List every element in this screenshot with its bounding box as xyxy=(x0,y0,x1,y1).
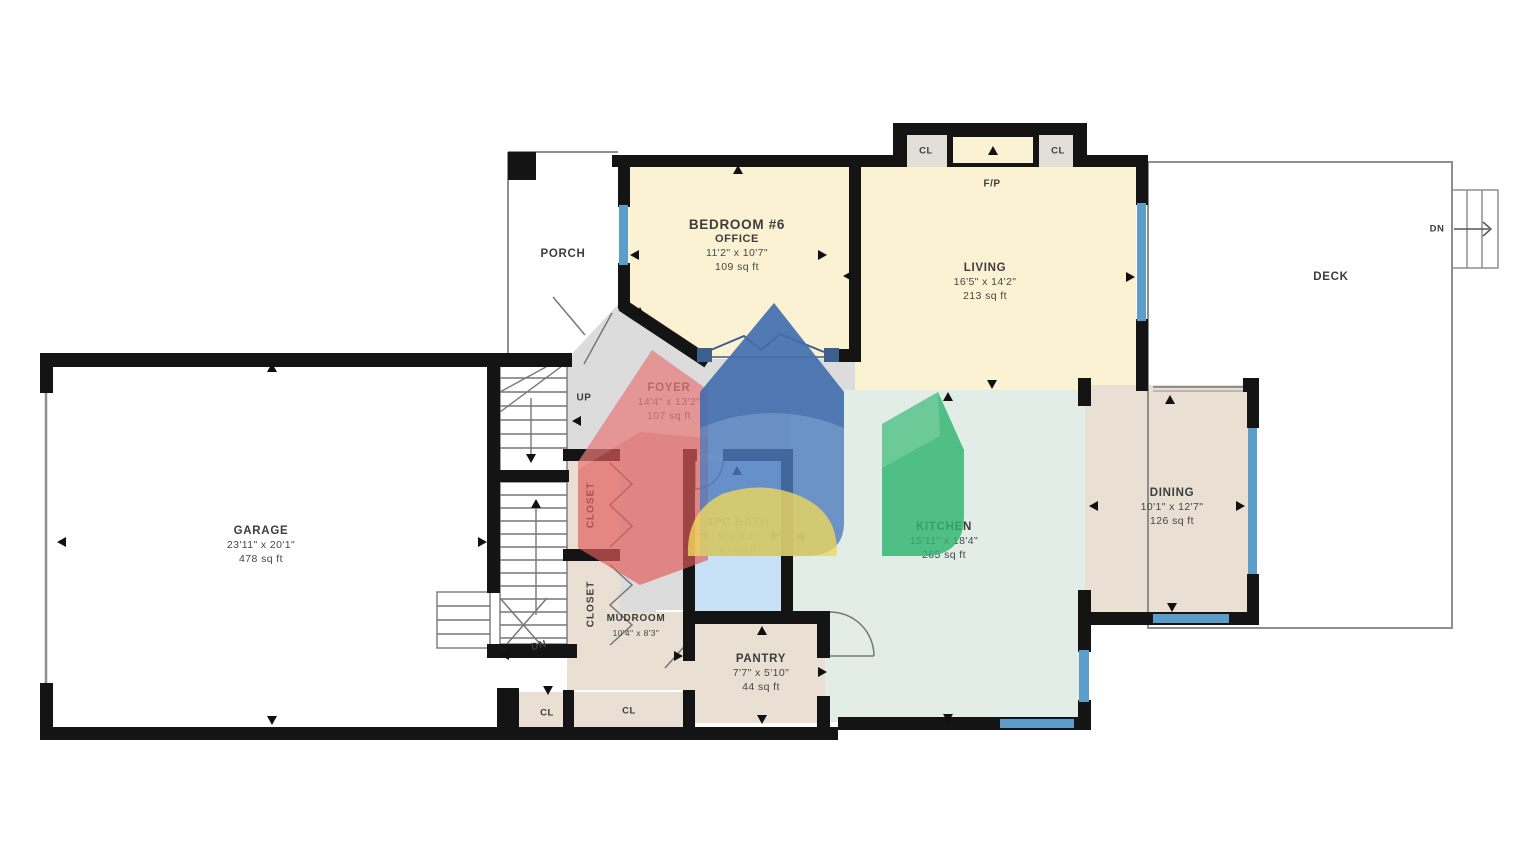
deck-stairs-down-label: DN xyxy=(1430,224,1445,235)
room-name: BEDROOM #6 xyxy=(689,218,785,232)
closet-abbr-bottom-center: CL xyxy=(622,706,636,717)
staircase xyxy=(437,362,567,648)
room-name: DECK xyxy=(1313,270,1348,284)
room-area: 42 sq ft xyxy=(707,544,769,558)
room-dims: 7'7" x 5'10" xyxy=(733,666,790,680)
room-label-dining: DINING 10'1" x 12'7" 126 sq ft xyxy=(1141,486,1204,528)
closet-abbr-top-right: CL xyxy=(1051,146,1065,157)
closet-upper-label: CLOSET xyxy=(586,482,597,529)
room-area: 107 sq ft xyxy=(638,409,701,423)
room-name: LIVING xyxy=(954,261,1017,275)
deck-stairs-arrow xyxy=(1454,222,1491,236)
room-name: MUDROOM xyxy=(607,612,666,626)
fireplace-label: F/P xyxy=(983,179,1000,190)
room-label-living: LIVING 16'5" x 14'2" 213 sq ft xyxy=(954,261,1017,303)
room-label-pantry: PANTRY 7'7" x 5'10" 44 sq ft xyxy=(733,652,790,694)
room-area: 109 sq ft xyxy=(689,260,785,274)
room-label-bath: 4PC BATH 5' x 8'4" 42 sq ft xyxy=(707,516,769,558)
room-dims: 10'4" x 8'3" xyxy=(607,626,666,640)
room-dims: 10'1" x 12'7" xyxy=(1141,500,1204,514)
room-name: PANTRY xyxy=(733,652,790,666)
room-label-kitchen: KITCHEN 15'11" x 18'4" 265 sq ft xyxy=(910,520,978,562)
room-area: 126 sq ft xyxy=(1141,514,1204,528)
room-dims: 14'4" x 13'2" xyxy=(638,395,701,409)
room-label-mudroom: MUDROOM 10'4" x 8'3" xyxy=(607,612,666,640)
room-dims: 11'2" x 10'7" xyxy=(689,246,785,260)
room-area: 44 sq ft xyxy=(733,680,790,694)
room-label-deck: DECK xyxy=(1313,270,1348,284)
floorplan-drawing xyxy=(0,0,1536,864)
room-dims: 5' x 8'4" xyxy=(707,530,769,544)
room-area: 265 sq ft xyxy=(910,548,978,562)
room-name: KITCHEN xyxy=(910,520,978,534)
closet-lower-label: CLOSET xyxy=(586,581,597,628)
room-label-foyer: FOYER 14'4" x 13'2" 107 sq ft xyxy=(638,381,701,423)
room-name: DINING xyxy=(1141,486,1204,500)
room-name: GARAGE xyxy=(227,524,295,538)
room-alt-name: OFFICE xyxy=(689,232,785,246)
room-dims: 15'11" x 18'4" xyxy=(910,534,978,548)
room-area: 478 sq ft xyxy=(227,552,295,566)
room-name: 4PC BATH xyxy=(707,516,769,530)
stairs-up-label: UP xyxy=(577,393,592,404)
floor-plan: PORCH BEDROOM #6 OFFICE 11'2" x 10'7" 10… xyxy=(0,0,1536,864)
room-area: 213 sq ft xyxy=(954,289,1017,303)
room-name: PORCH xyxy=(540,247,585,261)
room-label-garage: GARAGE 23'11" x 20'1" 478 sq ft xyxy=(227,524,295,566)
closet-abbr-bottom-left: CL xyxy=(540,708,554,719)
room-dims: 23'11" x 20'1" xyxy=(227,538,295,552)
closet-abbr-top-left: CL xyxy=(919,146,933,157)
room-dims: 16'5" x 14'2" xyxy=(954,275,1017,289)
room-label-bedroom: BEDROOM #6 OFFICE 11'2" x 10'7" 109 sq f… xyxy=(689,218,785,274)
room-label-porch: PORCH xyxy=(540,247,585,261)
room-name: FOYER xyxy=(638,381,701,395)
